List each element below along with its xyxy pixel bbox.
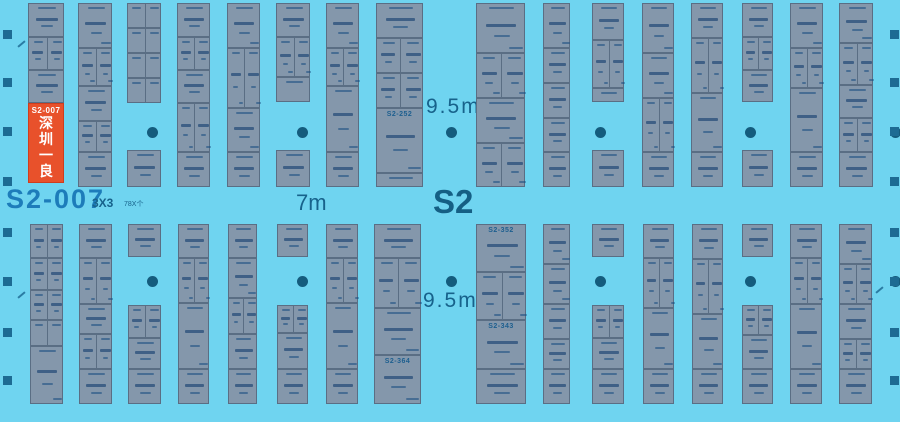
booth-cell[interactable] [31, 225, 47, 257]
booth-text-line [201, 58, 206, 60]
booth-cell[interactable] [807, 259, 821, 303]
booth[interactable] [790, 48, 823, 88]
booth[interactable] [28, 70, 64, 103]
booth-text-line [613, 60, 623, 63]
booth-text-line [150, 309, 159, 311]
booth[interactable] [790, 88, 823, 152]
booth[interactable] [177, 103, 210, 152]
booth-cell[interactable] [327, 259, 343, 302]
booth[interactable] [742, 369, 773, 404]
booth[interactable] [691, 3, 723, 38]
booth-cell[interactable] [229, 299, 243, 333]
booth[interactable] [127, 3, 161, 28]
booth[interactable] [839, 85, 873, 118]
booth-text-line [249, 52, 258, 54]
booth[interactable] [692, 314, 723, 369]
booth-cell[interactable] [327, 49, 343, 85]
booth-cell[interactable] [145, 306, 160, 337]
booth[interactable] [839, 152, 873, 187]
booth-text-line [140, 358, 151, 360]
booth-text-line [132, 82, 141, 84]
booth[interactable] [228, 224, 257, 258]
booth[interactable] [227, 152, 260, 187]
booth[interactable] [476, 98, 525, 143]
booth[interactable] [79, 224, 112, 258]
booth-cell[interactable] [80, 259, 96, 303]
booth-text-line [562, 42, 570, 44]
booth-cell[interactable] [743, 306, 758, 334]
booth[interactable] [691, 93, 723, 152]
booth[interactable] [178, 369, 209, 404]
booth[interactable] [79, 334, 112, 369]
booth-cell[interactable] [80, 335, 96, 368]
booth-cell[interactable] [857, 44, 872, 84]
booth-cell[interactable] [693, 260, 708, 313]
booth[interactable] [227, 108, 260, 152]
booth-cell[interactable] [708, 260, 722, 313]
booth-cell[interactable] [398, 259, 420, 307]
booth-text-line [39, 350, 56, 352]
booth[interactable] [543, 339, 570, 369]
booth-cell[interactable] [593, 306, 609, 337]
booth-cell[interactable] [96, 259, 111, 303]
booth[interactable] [643, 224, 674, 258]
booth-cell[interactable] [145, 54, 160, 77]
booth[interactable] [127, 150, 161, 187]
booth-cell[interactable] [840, 119, 857, 151]
booth-text-line [190, 392, 200, 394]
booth[interactable] [742, 3, 773, 37]
booth-text-line [615, 71, 620, 73]
booth[interactable] [228, 369, 257, 404]
booth-cell[interactable] [294, 38, 309, 76]
booth-text-line [182, 41, 190, 43]
booth[interactable] [543, 83, 570, 118]
booth[interactable] [543, 264, 570, 304]
booth-text-line [406, 398, 419, 400]
booth-cell[interactable] [47, 321, 62, 345]
booth-text-line [349, 287, 354, 289]
booth[interactable] [376, 3, 423, 38]
booth[interactable] [127, 53, 161, 78]
booth[interactable] [128, 369, 161, 404]
booth-text-line [184, 287, 189, 289]
booth-cell[interactable] [79, 122, 96, 151]
booth[interactable] [78, 86, 112, 121]
booth-cell[interactable] [47, 225, 62, 257]
booth-text-line [132, 57, 141, 59]
booth-cell[interactable] [758, 306, 772, 334]
booth[interactable] [177, 3, 210, 37]
booth-cell[interactable] [857, 119, 872, 151]
booth[interactable]: S2-252 [376, 108, 423, 173]
booth[interactable] [30, 258, 63, 290]
booth[interactable] [178, 303, 209, 369]
booth[interactable] [79, 304, 112, 334]
booth[interactable] [277, 224, 308, 257]
booth-text-line [236, 156, 253, 158]
booth-cell[interactable] [791, 49, 807, 87]
booth-cell[interactable] [501, 54, 524, 97]
booth-cell[interactable] [47, 259, 62, 289]
booth-cell[interactable] [477, 144, 501, 186]
booth[interactable] [592, 369, 624, 404]
booth-text-line [289, 25, 300, 27]
booth-text-line [696, 42, 704, 44]
booth-cell[interactable] [807, 49, 822, 87]
booth-cell[interactable] [179, 259, 194, 302]
booth-text-line [703, 308, 707, 310]
booth[interactable] [543, 152, 570, 187]
booth-text-line [553, 140, 562, 142]
booth-text-line [41, 25, 53, 27]
booth-cell[interactable] [477, 54, 501, 97]
booth-text-line [248, 302, 256, 304]
booth-cell[interactable] [96, 335, 111, 368]
booth-text-line [613, 319, 623, 322]
booth[interactable] [228, 258, 257, 298]
booth-text-line [861, 61, 872, 64]
booth-text-line [32, 51, 43, 54]
booth-cell[interactable] [840, 265, 856, 303]
booth-text-line [549, 63, 566, 66]
booth-text-line [331, 262, 339, 264]
booth[interactable]: S2-352 [476, 224, 526, 272]
booth-text-line [286, 81, 303, 83]
booth-text-line [494, 314, 501, 316]
booth[interactable] [277, 333, 308, 369]
booth-text-line [843, 133, 854, 136]
booth-text-line [236, 262, 251, 264]
booth-text-line [551, 7, 565, 9]
booth[interactable] [228, 298, 257, 334]
booth[interactable] [543, 304, 570, 339]
booth-text-line [349, 146, 358, 148]
highlighted-booth[interactable]: S2-007 深圳一良 [28, 103, 64, 183]
booth-text-line [553, 32, 562, 34]
booth-text-line [103, 73, 108, 75]
booth-cell[interactable] [377, 74, 400, 107]
wall-column [3, 376, 12, 385]
booth-cell[interactable] [501, 144, 524, 186]
booth-cell[interactable] [400, 39, 422, 72]
booth[interactable] [277, 369, 308, 404]
booth-cell[interactable] [659, 259, 673, 307]
booth-cell[interactable] [244, 49, 259, 107]
booth-text-line [749, 238, 768, 241]
booth[interactable] [476, 53, 525, 98]
booth-cell[interactable] [145, 4, 160, 27]
booth-text-line [137, 342, 154, 344]
booth-text-line [482, 292, 498, 295]
booth-cell[interactable] [758, 38, 772, 69]
booth[interactable] [30, 320, 63, 346]
door-mark [17, 40, 25, 47]
booth[interactable] [376, 73, 423, 108]
pillar-dot [446, 276, 457, 287]
booth-text-line [799, 92, 816, 94]
booth[interactable] [592, 40, 624, 88]
booth[interactable] [790, 152, 823, 187]
booth-text-line [813, 42, 822, 44]
booth-cell[interactable] [856, 265, 871, 303]
booth[interactable]: S2-343 [476, 320, 526, 369]
booth[interactable] [276, 3, 310, 37]
booth-cell[interactable] [791, 259, 807, 303]
booth-text-line [802, 246, 812, 248]
booth-text-line [651, 156, 667, 158]
booth-text-line [101, 52, 110, 54]
booth[interactable] [691, 152, 723, 187]
booth-cell[interactable] [692, 39, 708, 92]
booth-cell[interactable] [145, 79, 160, 102]
booth-cell[interactable] [145, 29, 160, 52]
booth-text-line [383, 42, 395, 44]
booth[interactable] [476, 369, 526, 404]
booth[interactable] [692, 224, 723, 259]
booth-cell[interactable] [47, 291, 62, 319]
booth-cell[interactable] [840, 44, 857, 84]
booth-text-line [35, 324, 43, 326]
booth[interactable] [742, 37, 773, 70]
booth-text-line [333, 113, 353, 116]
booth[interactable] [543, 224, 570, 264]
booth-cell[interactable] [840, 340, 856, 368]
booth[interactable] [543, 118, 570, 152]
booth[interactable] [276, 37, 310, 77]
booth-cell[interactable] [277, 38, 294, 76]
booth[interactable] [691, 38, 723, 93]
booth-text-line [648, 262, 656, 264]
booth[interactable] [592, 150, 624, 187]
booth[interactable] [326, 86, 359, 152]
booth[interactable] [79, 369, 112, 404]
booth-cell[interactable] [609, 306, 623, 337]
booth[interactable] [228, 334, 257, 369]
booth-cell[interactable] [743, 38, 758, 69]
booth[interactable] [790, 258, 822, 304]
booth-cell[interactable] [194, 259, 208, 302]
booth-cell[interactable] [128, 79, 145, 102]
booth[interactable] [326, 48, 359, 86]
booth-text-line [284, 384, 303, 387]
booth[interactable] [839, 369, 872, 404]
booth[interactable] [376, 38, 423, 73]
booth[interactable] [592, 3, 624, 40]
booth[interactable] [374, 308, 421, 355]
booth-text-line [802, 298, 806, 300]
booth-text-line [811, 65, 822, 68]
booth[interactable] [476, 3, 525, 53]
booth[interactable] [78, 3, 112, 48]
booth[interactable] [643, 369, 674, 404]
booth[interactable] [790, 224, 822, 258]
booth[interactable] [28, 37, 64, 70]
booth-text-line [846, 20, 867, 23]
booth-cell[interactable] [502, 273, 525, 319]
booth[interactable] [227, 3, 260, 48]
booth-cell[interactable] [477, 273, 502, 319]
booth[interactable] [592, 88, 624, 102]
booth[interactable] [839, 43, 873, 85]
booth[interactable] [839, 264, 872, 304]
booth-cell[interactable] [377, 39, 400, 72]
wall-column [3, 328, 12, 337]
booth-cell[interactable] [228, 49, 244, 107]
booth[interactable] [839, 224, 872, 264]
booth[interactable] [476, 272, 526, 320]
booth-text-line [485, 171, 493, 173]
booth-cell[interactable] [343, 49, 358, 85]
booth-cell[interactable] [643, 99, 659, 151]
booth[interactable] [790, 369, 822, 404]
booth[interactable] [742, 70, 773, 102]
booth[interactable] [839, 118, 873, 152]
booth-cell[interactable] [400, 74, 422, 107]
booth[interactable] [177, 37, 210, 70]
booth-text-line [751, 7, 767, 9]
booth[interactable] [277, 305, 308, 333]
booth[interactable] [276, 77, 310, 102]
booth[interactable] [374, 258, 421, 308]
booth-cell[interactable] [343, 259, 357, 302]
booth[interactable] [643, 308, 674, 369]
booth-cell[interactable] [293, 306, 307, 332]
booth[interactable] [742, 224, 773, 257]
booth[interactable] [326, 224, 358, 258]
booth-cell[interactable] [31, 291, 47, 319]
booth[interactable] [692, 259, 723, 314]
booth[interactable] [326, 258, 358, 303]
booth-cell[interactable] [178, 104, 194, 151]
booth-text-line [562, 298, 570, 300]
booth[interactable] [178, 258, 209, 303]
booth[interactable] [642, 53, 674, 98]
booth-cell[interactable] [243, 299, 256, 333]
wall-column [3, 228, 12, 237]
booth[interactable] [276, 150, 310, 187]
booth[interactable] [326, 3, 359, 48]
booth[interactable] [592, 338, 624, 369]
booth-text-line [649, 167, 669, 170]
booth-cell[interactable] [96, 49, 111, 85]
booth[interactable] [30, 346, 63, 404]
booth[interactable] [127, 28, 161, 53]
booth-text-line [549, 241, 566, 244]
booth-cell[interactable] [194, 38, 209, 69]
booth-cell[interactable] [128, 4, 145, 27]
booth[interactable] [128, 224, 161, 257]
booth[interactable] [742, 335, 773, 369]
booth-cell[interactable] [278, 306, 293, 332]
booth[interactable] [543, 369, 570, 404]
booth-cell[interactable] [194, 104, 209, 151]
booth[interactable] [839, 339, 872, 369]
booth[interactable] [128, 338, 161, 369]
booth[interactable] [128, 305, 161, 338]
booth-text-line [754, 392, 764, 394]
booth-cell[interactable] [31, 321, 47, 345]
booth[interactable] [790, 3, 823, 48]
booth[interactable]: S2-364 [374, 355, 421, 404]
booth[interactable] [30, 290, 63, 320]
booth-text-line [91, 175, 102, 177]
booth[interactable] [642, 3, 674, 53]
booth[interactable] [742, 305, 773, 335]
booth[interactable] [839, 304, 872, 339]
booth-cell[interactable] [96, 122, 111, 151]
booth-cell[interactable] [31, 259, 47, 289]
booth[interactable] [742, 150, 773, 187]
booth[interactable] [78, 152, 112, 187]
booth-cell[interactable] [856, 340, 871, 368]
booth-cell[interactable] [593, 41, 609, 87]
booth[interactable] [374, 224, 421, 258]
booth[interactable] [790, 304, 822, 369]
booth[interactable] [178, 224, 209, 258]
booth-text-line [189, 175, 200, 177]
booth-cell[interactable] [375, 259, 398, 307]
booth-text-line [713, 263, 721, 265]
booth-cell[interactable] [128, 29, 145, 52]
booth-cell[interactable] [708, 39, 722, 92]
booth[interactable] [643, 258, 674, 308]
booth-text-line [483, 57, 495, 59]
booth-text-line [861, 268, 870, 270]
booth-id-label: S2-364 [375, 358, 420, 366]
booth[interactable] [692, 369, 723, 404]
booth-text-line [795, 52, 803, 54]
booth-cell[interactable] [644, 259, 659, 307]
booth-cell[interactable] [29, 38, 47, 69]
booth[interactable] [127, 78, 161, 103]
booth-cell[interactable] [128, 54, 145, 77]
booth-cell[interactable] [178, 38, 194, 69]
booth-text-line [348, 363, 357, 365]
booth[interactable] [326, 369, 358, 404]
booth[interactable] [326, 152, 359, 187]
booth[interactable] [30, 224, 63, 258]
booth[interactable] [177, 70, 210, 103]
booth-text-line [140, 392, 151, 394]
booth[interactable] [642, 152, 674, 187]
booth[interactable] [592, 305, 624, 338]
booth[interactable] [326, 303, 358, 369]
booth-text-line [494, 255, 510, 257]
booth[interactable] [79, 258, 112, 304]
booth[interactable] [592, 224, 624, 257]
booth[interactable] [476, 143, 525, 187]
booth[interactable] [78, 48, 112, 86]
booth[interactable] [839, 3, 873, 43]
booth-cell[interactable] [659, 99, 673, 151]
booth[interactable] [543, 48, 570, 83]
booth-cell[interactable] [609, 41, 623, 87]
booth-cell[interactable] [79, 49, 96, 85]
booth-text-line [301, 63, 306, 65]
booth[interactable] [543, 3, 570, 48]
booth-text-line [598, 326, 603, 328]
booth[interactable] [78, 121, 112, 152]
booth[interactable] [177, 152, 210, 187]
booth[interactable] [642, 98, 674, 152]
booth[interactable] [376, 173, 423, 187]
booth-cell[interactable] [47, 38, 63, 69]
booth-text-line [350, 73, 355, 75]
booth-cell[interactable] [129, 306, 145, 337]
booth[interactable] [28, 3, 64, 37]
booth[interactable] [227, 48, 260, 108]
